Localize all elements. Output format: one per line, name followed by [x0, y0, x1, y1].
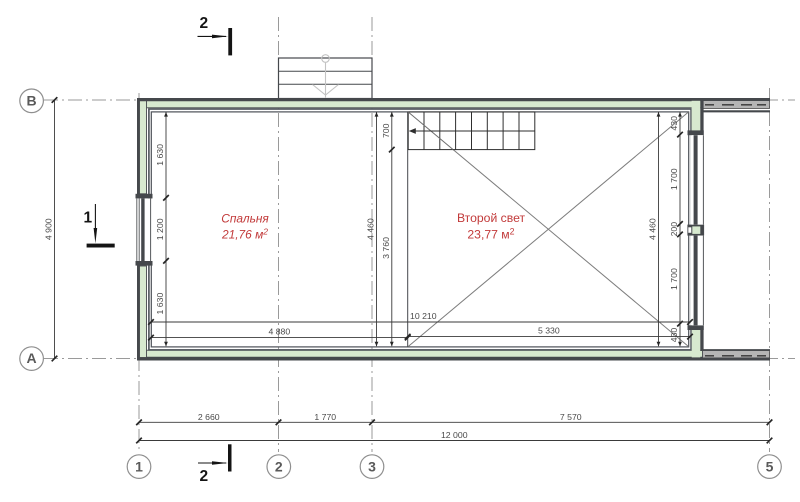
svg-text:1 200: 1 200 — [155, 218, 165, 240]
svg-text:А: А — [27, 350, 37, 366]
svg-text:1 770: 1 770 — [314, 412, 336, 422]
svg-text:1: 1 — [135, 459, 143, 475]
svg-text:21,76 м2: 21,76 м2 — [221, 227, 268, 242]
svg-text:1 700: 1 700 — [669, 168, 679, 190]
svg-text:1: 1 — [84, 210, 93, 227]
svg-text:3: 3 — [368, 459, 376, 475]
svg-text:2: 2 — [275, 459, 283, 475]
svg-text:4 880: 4 880 — [268, 327, 290, 337]
svg-text:2: 2 — [200, 15, 209, 32]
svg-text:5: 5 — [766, 459, 774, 475]
svg-text:700: 700 — [381, 123, 391, 138]
svg-text:Спальня: Спальня — [221, 212, 269, 226]
svg-text:4 900: 4 900 — [44, 218, 54, 240]
svg-text:12 000: 12 000 — [441, 430, 468, 440]
svg-text:5 330: 5 330 — [538, 326, 560, 336]
svg-text:430: 430 — [669, 116, 679, 131]
svg-text:4 460: 4 460 — [366, 218, 376, 240]
svg-text:7 570: 7 570 — [560, 412, 582, 422]
svg-text:1 700: 1 700 — [669, 268, 679, 290]
svg-text:В: В — [27, 92, 37, 108]
svg-text:10 210: 10 210 — [410, 311, 437, 321]
svg-text:Второй свет: Второй свет — [457, 211, 526, 225]
svg-text:3 760: 3 760 — [381, 237, 391, 259]
svg-text:430: 430 — [669, 328, 679, 343]
svg-text:23,77 м2: 23,77 м2 — [467, 227, 514, 242]
svg-text:4 460: 4 460 — [648, 218, 658, 240]
svg-text:2: 2 — [200, 468, 209, 485]
svg-text:2 660: 2 660 — [198, 412, 220, 422]
svg-text:1 630: 1 630 — [155, 144, 165, 166]
svg-text:200: 200 — [669, 222, 679, 237]
svg-text:1 630: 1 630 — [155, 293, 165, 315]
